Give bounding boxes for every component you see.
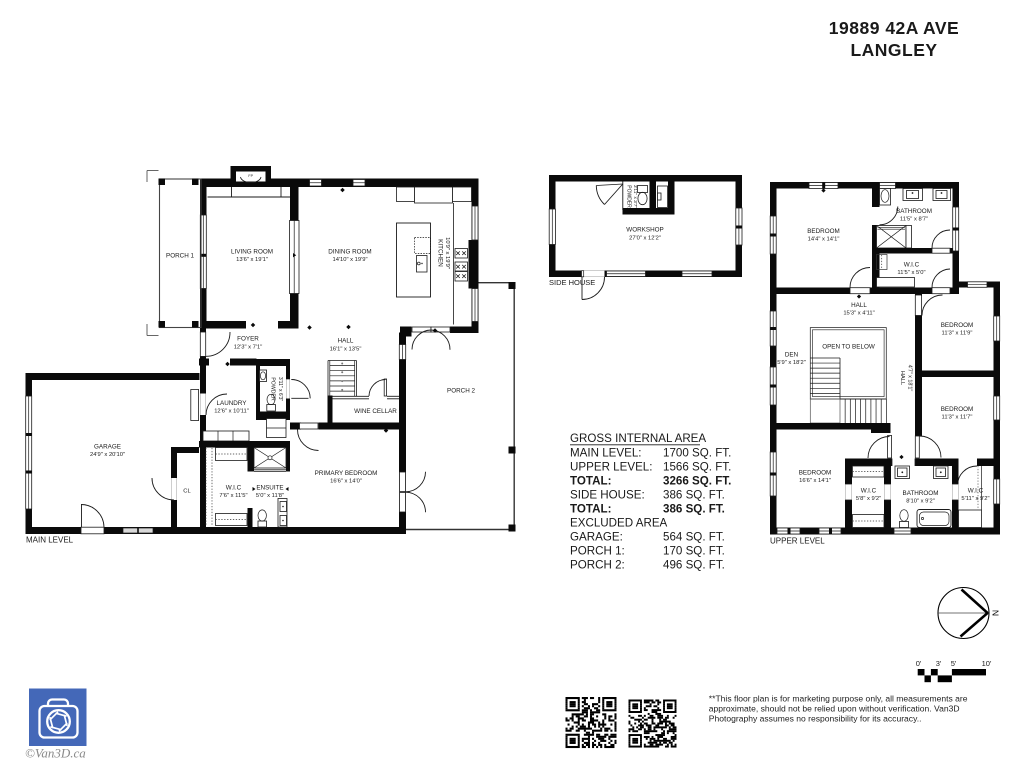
svg-text:16'1" x 13'5": 16'1" x 13'5": [330, 347, 362, 353]
svg-text:3266 SQ. FT.: 3266 SQ. FT.: [663, 475, 731, 488]
svg-text:approximate, should not be rel: approximate, should not be relied upon w…: [709, 704, 960, 714]
svg-text:8'10" x 9'2": 8'10" x 9'2": [906, 499, 935, 505]
svg-text:0': 0': [916, 659, 922, 668]
svg-text:5'11" x 9'2": 5'11" x 9'2": [961, 496, 989, 502]
svg-text:5'9" x 18'2": 5'9" x 18'2": [777, 360, 806, 366]
svg-text:10': 10': [982, 659, 992, 668]
svg-text:FP: FP: [248, 174, 253, 178]
svg-text:564 SQ. FT.: 564 SQ. FT.: [663, 531, 725, 544]
svg-text:LANGLEY: LANGLEY: [850, 40, 937, 60]
svg-text:24'9" x 20'10": 24'9" x 20'10": [90, 452, 125, 458]
svg-text:15'3" x 4'11": 15'3" x 4'11": [843, 311, 874, 317]
svg-text:PRIMARY BEDROOM: PRIMARY BEDROOM: [315, 470, 378, 477]
svg-text:11'5" x 5'0": 11'5" x 5'0": [897, 270, 925, 276]
svg-text:W.I.C: W.I.C: [968, 488, 984, 495]
svg-text:19889 42A AVE: 19889 42A AVE: [829, 18, 959, 38]
svg-text:WINE CELLAR: WINE CELLAR: [354, 408, 397, 415]
svg-text:Photography assumes no respons: Photography assumes no responsibility fo…: [709, 714, 922, 724]
svg-text:5': 5': [951, 659, 957, 668]
svg-text:CL: CL: [183, 489, 191, 495]
svg-text:BEDROOM: BEDROOM: [799, 470, 832, 477]
svg-text:16'6" x 14'0": 16'6" x 14'0": [330, 479, 362, 485]
svg-text:5'8" x 9'2": 5'8" x 9'2": [856, 496, 881, 502]
svg-text:W.I.C: W.I.C: [904, 262, 920, 269]
svg-text:3'11" x 6'3": 3'11" x 6'3": [277, 377, 283, 401]
svg-text:N: N: [991, 610, 1001, 616]
svg-text:WORKSHOP: WORKSHOP: [626, 227, 663, 234]
svg-text:1700 SQ. FT.: 1700 SQ. FT.: [663, 447, 731, 460]
svg-text:10'9" x 19'9": 10'9" x 19'9": [444, 237, 450, 269]
svg-text:16'6" x 14'1": 16'6" x 14'1": [799, 478, 831, 484]
svg-text:BEDROOM: BEDROOM: [807, 228, 840, 235]
svg-text:OPEN TO BELOW: OPEN TO BELOW: [822, 344, 875, 351]
svg-text:170 SQ. FT.: 170 SQ. FT.: [663, 545, 725, 558]
svg-text:KITCHEN: KITCHEN: [437, 239, 444, 267]
svg-text:LAUNDRY: LAUNDRY: [217, 400, 248, 407]
svg-text:11'5" x 8'7": 11'5" x 8'7": [900, 217, 928, 223]
svg-text:386 SQ. FT.: 386 SQ. FT.: [663, 503, 725, 516]
svg-text:POWDER: POWDER: [270, 377, 276, 401]
svg-text:©Van3D.ca: ©Van3D.ca: [25, 746, 86, 761]
svg-text:BEDROOM: BEDROOM: [941, 406, 974, 413]
svg-text:7'6" x 11'5": 7'6" x 11'5": [219, 493, 247, 499]
svg-text:W.I.C: W.I.C: [861, 488, 877, 495]
svg-text:HALL: HALL: [338, 338, 354, 345]
svg-text:UPPER LEVEL:: UPPER LEVEL:: [570, 461, 652, 474]
svg-text:3': 3': [936, 659, 942, 668]
svg-text:BATHROOM: BATHROOM: [903, 490, 939, 497]
svg-text:PORCH 2: PORCH 2: [447, 388, 475, 395]
svg-text:GARAGE: GARAGE: [94, 444, 121, 451]
svg-text:12'6" x 10'11": 12'6" x 10'11": [214, 409, 249, 415]
svg-text:GARAGE:: GARAGE:: [570, 531, 623, 544]
svg-text:ENSUITE: ENSUITE: [256, 485, 283, 492]
svg-text:4'7" x 18'1": 4'7" x 18'1": [907, 365, 913, 392]
svg-text:SIDE HOUSE: SIDE HOUSE: [549, 278, 595, 287]
svg-text:HALL: HALL: [851, 302, 867, 309]
svg-text:MAIN LEVEL:: MAIN LEVEL:: [570, 447, 642, 460]
svg-text:DINING ROOM: DINING ROOM: [328, 249, 371, 256]
svg-text:PORCH 1:: PORCH 1:: [570, 545, 625, 558]
svg-text:BATHROOM: BATHROOM: [896, 208, 932, 215]
svg-text:LIVING ROOM: LIVING ROOM: [231, 249, 273, 256]
svg-text:11'3" x 11'9": 11'3" x 11'9": [942, 331, 973, 337]
svg-text:5'0" x 11'8": 5'0" x 11'8": [256, 493, 284, 499]
svg-text:W.I.C: W.I.C: [226, 485, 242, 492]
svg-text:13'6" x 19'1": 13'6" x 19'1": [236, 257, 268, 263]
svg-text:**This floor plan is for marke: **This floor plan is for marketing purpo…: [709, 694, 968, 704]
svg-text:386 SQ. FT.: 386 SQ. FT.: [663, 489, 725, 502]
svg-text:EXCLUDED AREA: EXCLUDED AREA: [570, 517, 668, 530]
svg-text:1566 SQ. FT.: 1566 SQ. FT.: [663, 461, 731, 474]
svg-text:DEN: DEN: [785, 352, 799, 359]
svg-text:MAIN LEVEL: MAIN LEVEL: [26, 536, 74, 545]
svg-text:POWDER: POWDER: [626, 185, 632, 208]
svg-text:PORCH 1: PORCH 1: [166, 253, 194, 260]
svg-text:14'10" x 19'9": 14'10" x 19'9": [332, 257, 367, 263]
svg-text:GROSS INTERNAL AREA: GROSS INTERNAL AREA: [570, 432, 706, 445]
svg-text:BEDROOM: BEDROOM: [941, 322, 974, 329]
svg-text:FOYER: FOYER: [237, 336, 259, 343]
svg-text:14'4" x 14'1": 14'4" x 14'1": [808, 237, 840, 243]
svg-text:PORCH 2:: PORCH 2:: [570, 559, 625, 572]
svg-text:12'3" x 7'1": 12'3" x 7'1": [234, 345, 263, 351]
svg-text:27'0" x 12'2": 27'0" x 12'2": [629, 236, 661, 242]
svg-text:SIDE HOUSE:: SIDE HOUSE:: [570, 489, 645, 502]
svg-text:TOTAL:: TOTAL:: [570, 503, 611, 516]
svg-text:TOTAL:: TOTAL:: [570, 475, 611, 488]
svg-text:UPPER LEVEL: UPPER LEVEL: [770, 537, 825, 546]
svg-text:11'3" x 11'7": 11'3" x 11'7": [942, 415, 973, 421]
svg-text:496 SQ. FT.: 496 SQ. FT.: [663, 559, 725, 572]
svg-text:3'11" x 3'7": 3'11" x 3'7": [632, 185, 638, 209]
svg-text:HALL: HALL: [899, 371, 905, 386]
